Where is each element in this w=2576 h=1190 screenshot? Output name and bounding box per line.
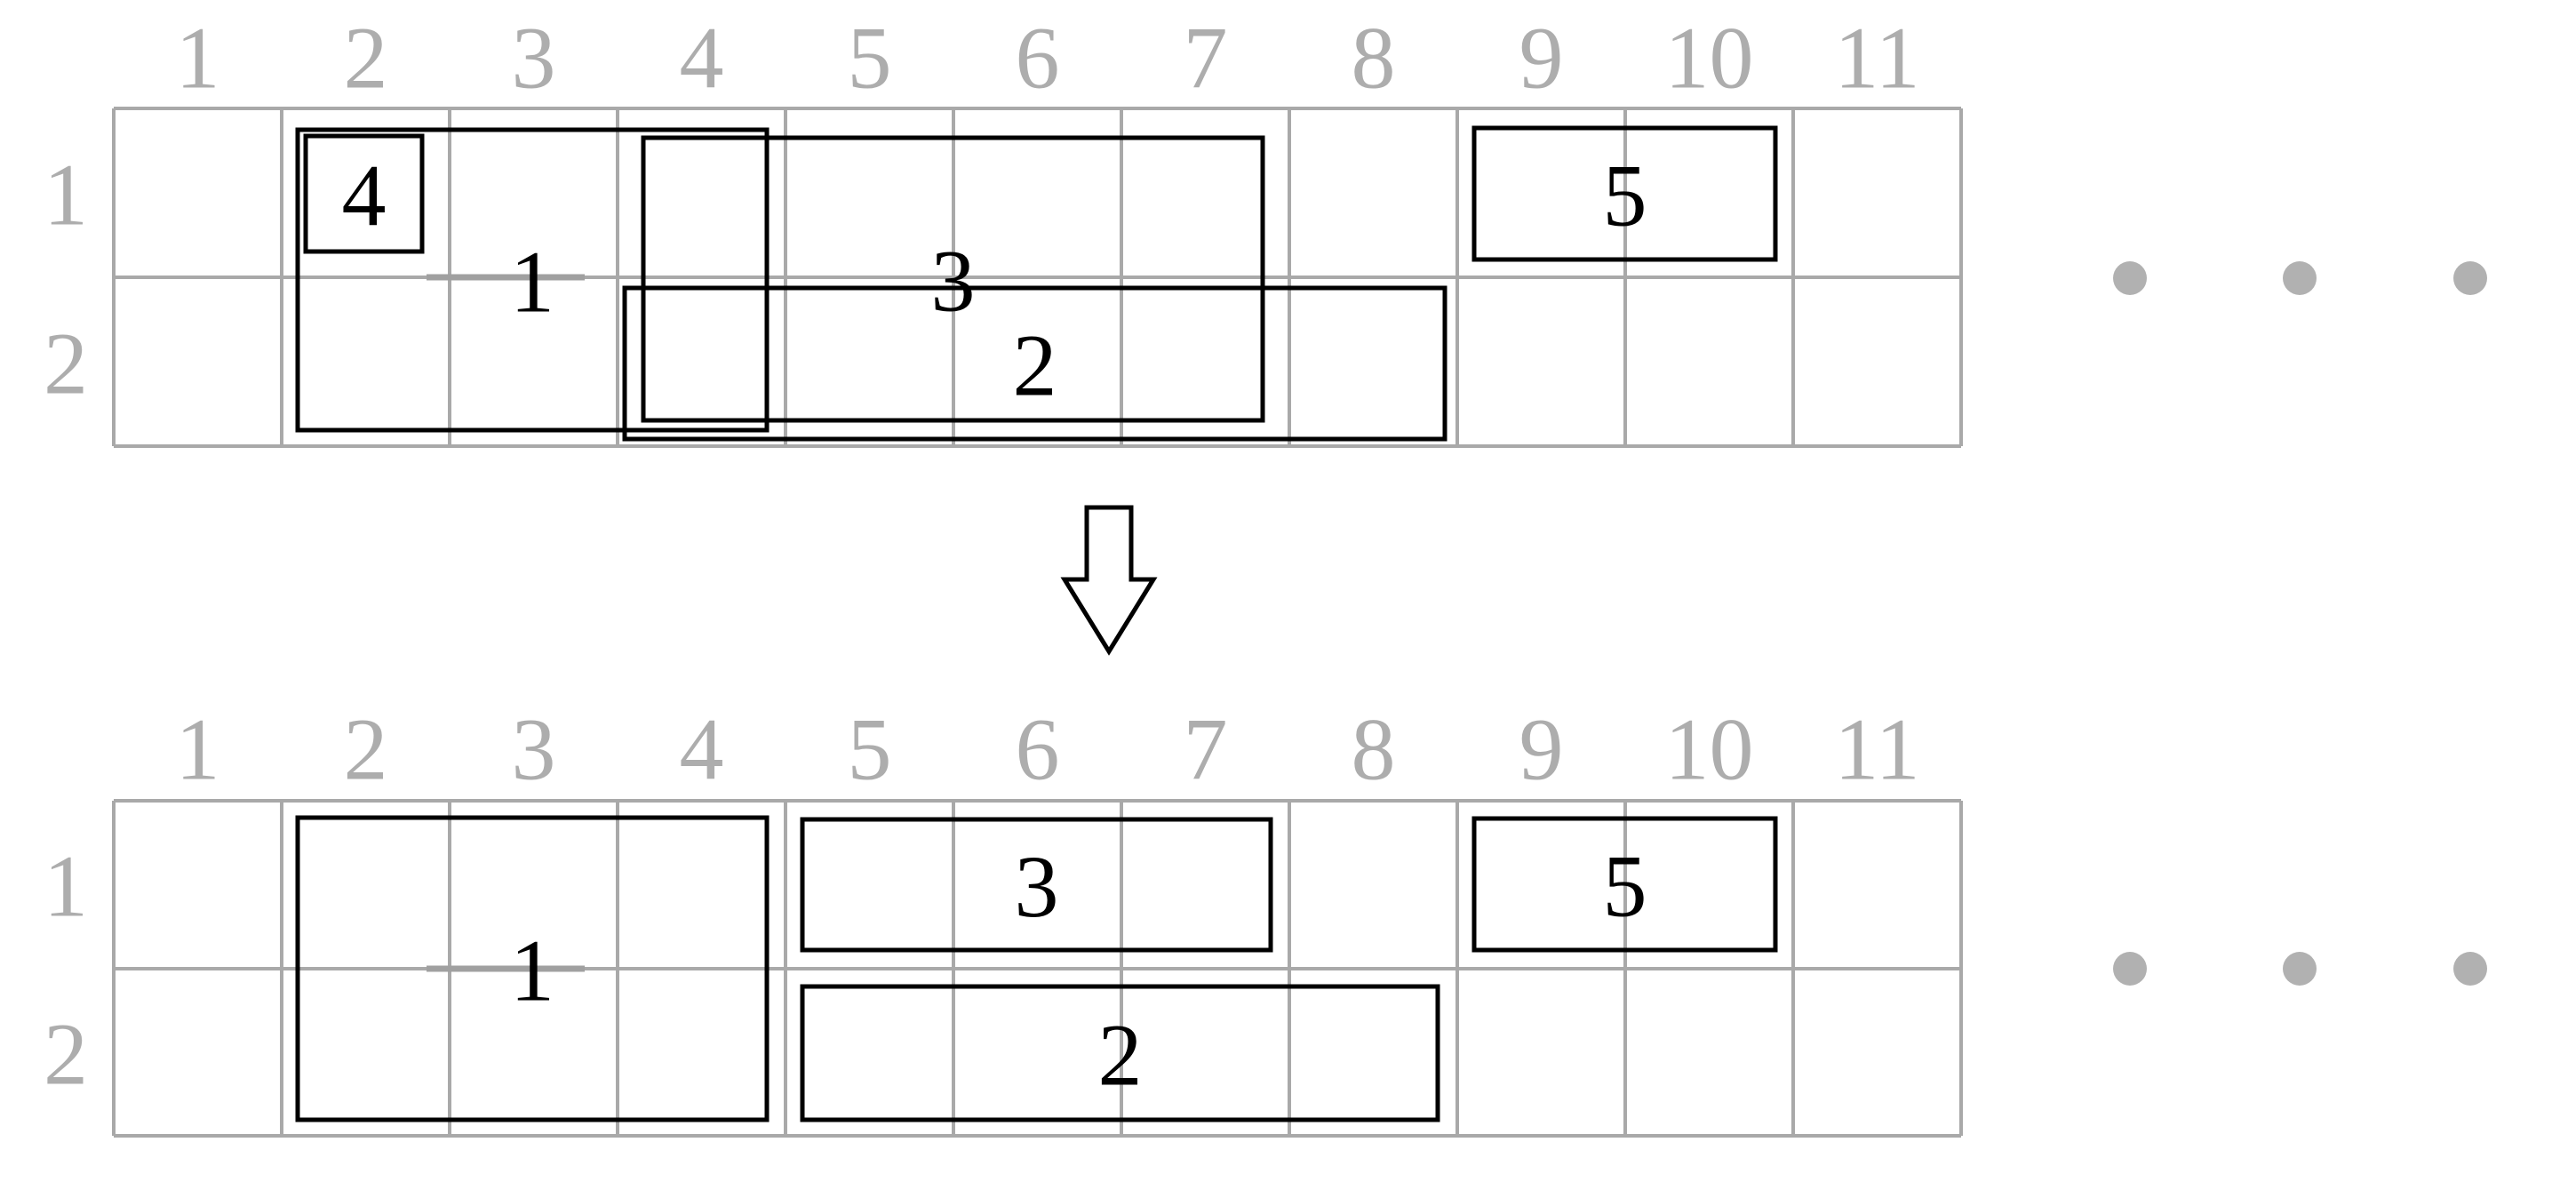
column-header-3: 3 [512,9,556,108]
column-header-9: 9 [1519,700,1564,799]
ellipsis-dot [2453,261,2487,295]
row-label-2: 2 [44,315,88,413]
item-box-label-3: 3 [931,232,976,331]
column-header-5: 5 [848,700,892,799]
figure-canvas: 123456789101112143251234567891011121352 [0,0,2576,1190]
row-label-1: 1 [44,837,88,936]
column-header-11: 11 [1834,9,1919,108]
column-header-4: 4 [680,9,724,108]
ellipsis-dot [2113,261,2147,295]
panel-before: 12345678910111214325 [44,9,2487,447]
item-box-label-5: 5 [1603,837,1647,936]
column-header-8: 8 [1352,700,1396,799]
ellipsis-dot [2113,952,2147,986]
column-header-8: 8 [1352,9,1396,108]
ellipsis-dot [2283,952,2317,986]
item-box-label-3: 3 [1015,837,1059,936]
item-box-label-2: 2 [1098,1006,1143,1105]
column-header-9: 9 [1519,9,1564,108]
item-box-label-1: 1 [510,233,554,331]
column-header-6: 6 [1016,700,1060,799]
column-header-6: 6 [1016,9,1060,108]
column-header-11: 11 [1834,700,1919,799]
column-header-7: 7 [1184,9,1228,108]
row-label-1: 1 [44,146,88,244]
column-header-5: 5 [848,9,892,108]
panel-after: 1234567891011121352 [44,700,2487,1137]
column-header-2: 2 [344,9,388,108]
column-header-7: 7 [1184,700,1228,799]
item-box-label-1: 1 [510,922,554,1020]
column-header-3: 3 [512,700,556,799]
column-header-10: 10 [1665,700,1754,799]
column-header-4: 4 [680,700,724,799]
item-box-label-4: 4 [342,147,387,245]
column-header-10: 10 [1665,9,1754,108]
ellipsis-dot [2283,261,2317,295]
column-header-2: 2 [344,700,388,799]
column-header-1: 1 [176,700,220,799]
item-box-label-2: 2 [1013,316,1057,415]
column-header-1: 1 [176,9,220,108]
item-box-label-5: 5 [1603,147,1647,245]
row-label-2: 2 [44,1005,88,1104]
transformation-arrow-down-icon [1065,507,1153,651]
grid-packing-before-after-diagram: 123456789101112143251234567891011121352 [0,0,2576,1190]
ellipsis-dot [2453,952,2487,986]
